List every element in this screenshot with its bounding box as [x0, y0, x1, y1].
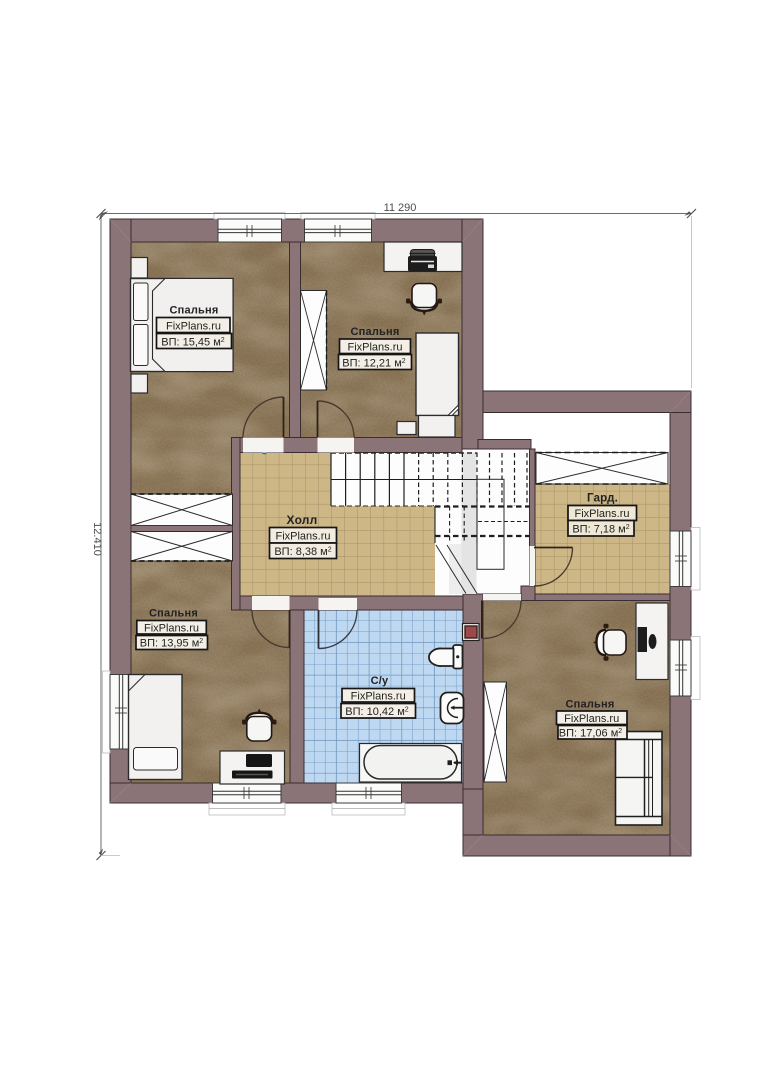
svg-text:FixPlans.ru: FixPlans.ru: [275, 531, 330, 543]
svg-text:ВП: 10,42 м2: ВП: 10,42 м2: [345, 706, 409, 718]
svg-text:ВП: 8,38 м2: ВП: 8,38 м2: [274, 546, 331, 558]
svg-text:FixPlans.ru: FixPlans.ru: [574, 508, 629, 520]
svg-text:FixPlans.ru: FixPlans.ru: [347, 342, 402, 354]
svg-text:FixPlans.ru: FixPlans.ru: [351, 690, 406, 702]
svg-text:С/у: С/у: [371, 675, 389, 687]
svg-text:FixPlans.ru: FixPlans.ru: [166, 320, 221, 332]
svg-text:Спальня: Спальня: [351, 326, 400, 338]
svg-text:12.410: 12.410: [91, 522, 103, 556]
svg-text:ВП: 12,21 м2: ВП: 12,21 м2: [342, 357, 406, 369]
svg-text:Холл: Холл: [287, 513, 318, 527]
svg-text:11 290: 11 290: [384, 202, 417, 214]
svg-text:ВП: 13,95 м2: ВП: 13,95 м2: [140, 638, 204, 650]
svg-text:FixPlans.ru: FixPlans.ru: [564, 713, 619, 725]
svg-text:ВП: 7,18 м2: ВП: 7,18 м2: [572, 523, 629, 535]
svg-text:Гард.: Гард.: [587, 493, 618, 505]
svg-text:FixPlans.ru: FixPlans.ru: [144, 622, 199, 634]
svg-text:ВП: 17,06 м2: ВП: 17,06 м2: [559, 727, 623, 739]
svg-text:ВП: 15,45 м2: ВП: 15,45 м2: [161, 336, 225, 348]
svg-text:Спальня: Спальня: [566, 699, 615, 711]
svg-text:Спальня: Спальня: [149, 608, 198, 620]
svg-text:Спальня: Спальня: [170, 305, 219, 317]
